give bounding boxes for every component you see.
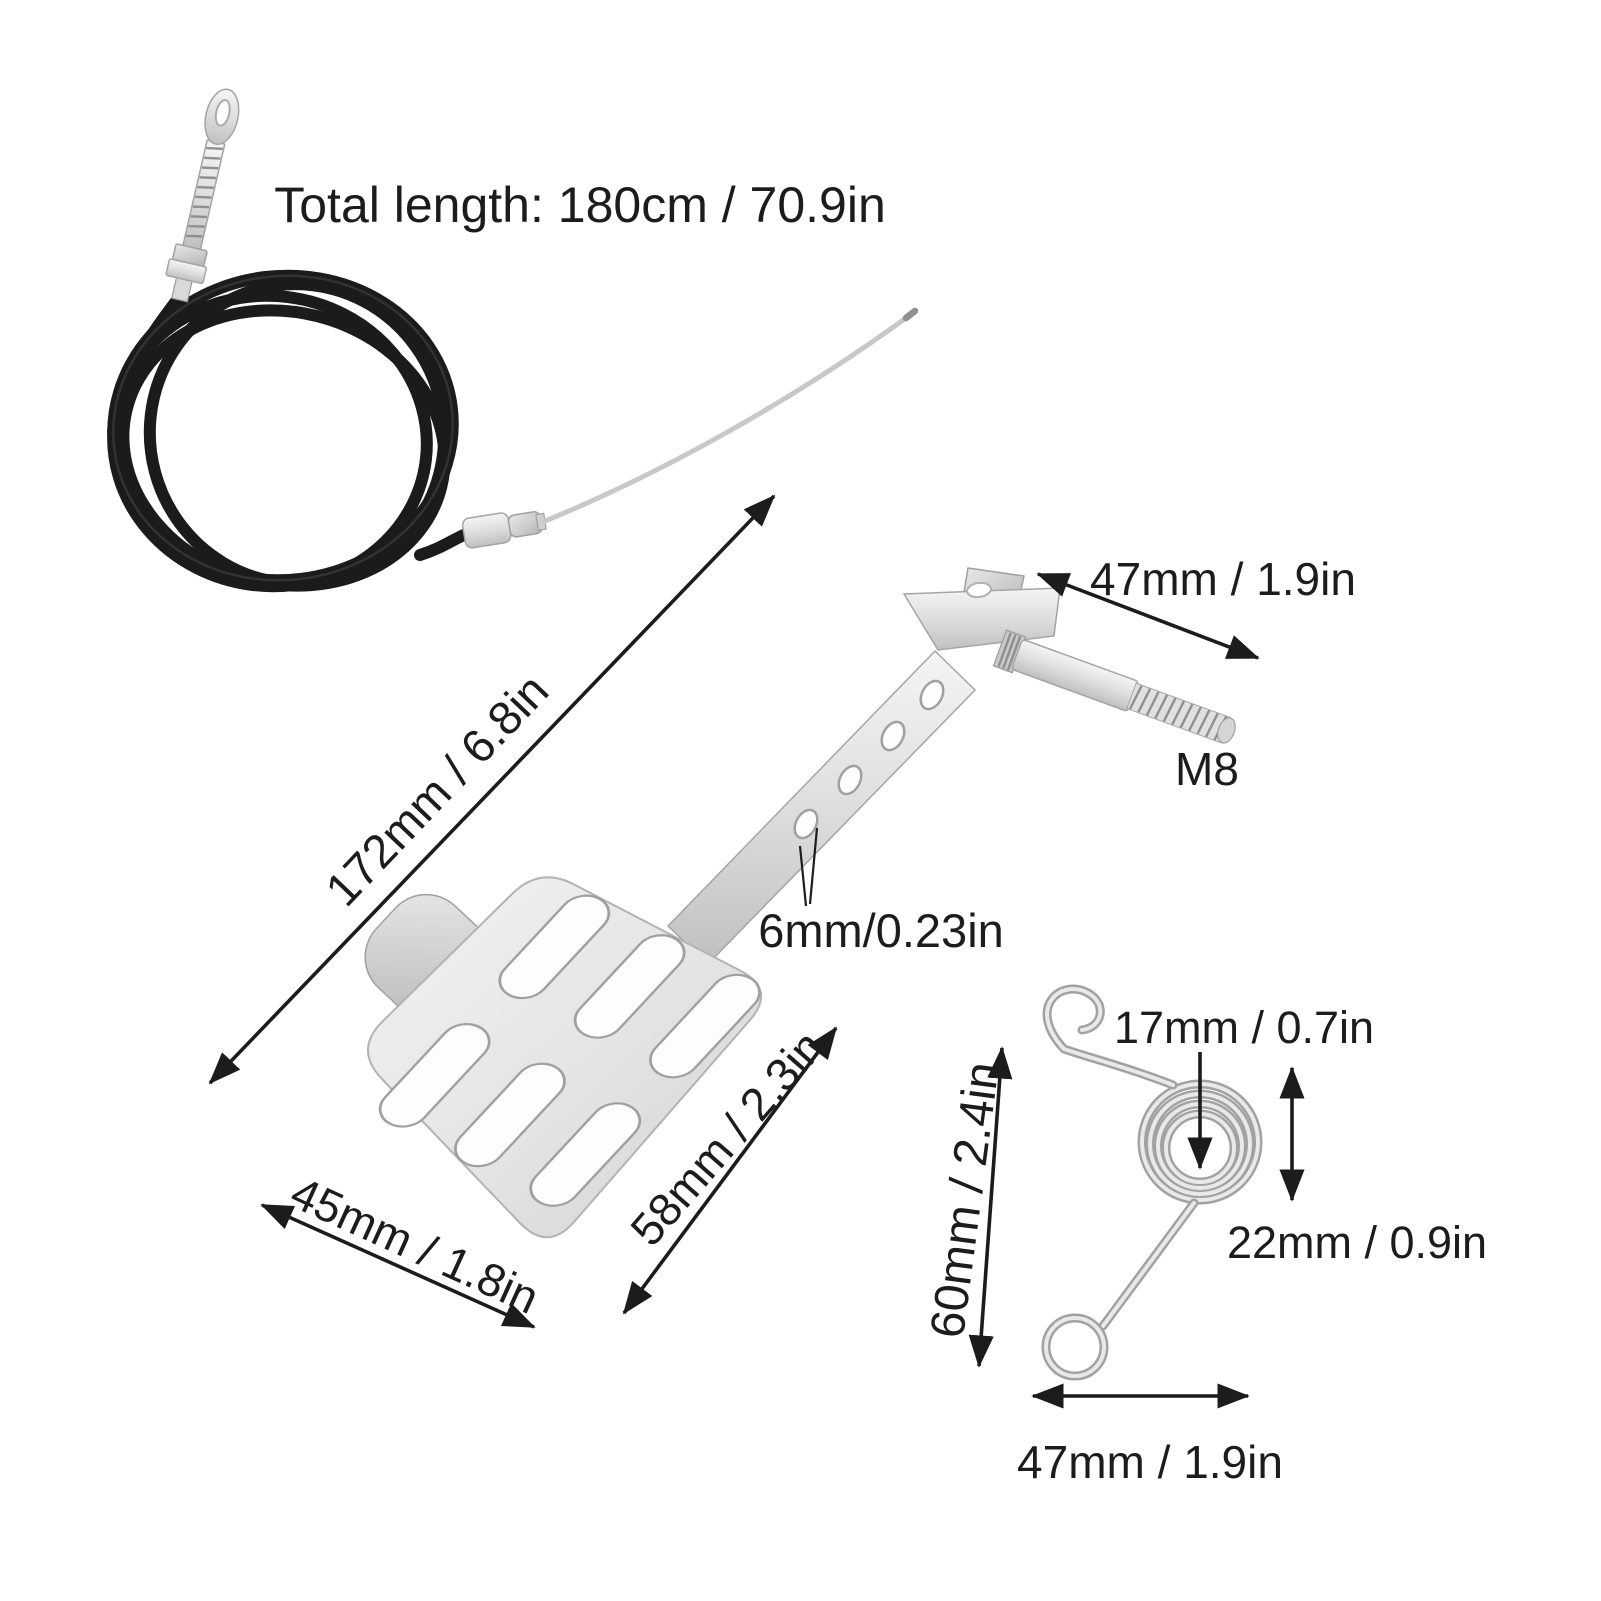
inner-wire-curve [545, 318, 906, 521]
thread-size-label: M8 [1175, 743, 1239, 795]
spring-width-label: 47mm / 1.9in [1017, 1436, 1283, 1488]
mounting-bolt [994, 630, 1241, 751]
spring-loop-highlight [1046, 1318, 1104, 1376]
dim-spring-width: 47mm / 1.9in [1017, 1396, 1283, 1488]
mount-bracket [904, 568, 1060, 650]
cable-coil [94, 251, 478, 619]
rod-shaft [182, 140, 224, 251]
spring-tail-highlight [1103, 1203, 1194, 1326]
bolt-length-label: 47mm / 1.9in [1090, 553, 1356, 605]
inner-wire-tip [906, 311, 915, 318]
product-dimension-diagram: Total length: 180cm / 70.9in 47mm / 1.9i… [0, 0, 1601, 1601]
spring-inner-label: 17mm / 0.7in [1114, 1002, 1374, 1053]
dim-thread-size: M8 [1175, 743, 1239, 795]
throttle-cable-photo [94, 85, 915, 619]
spring-coil-height-label: 22mm / 0.9in [1227, 1217, 1487, 1268]
dim-spring-height: 60mm / 2.4in [921, 1048, 1010, 1366]
total-length-label: Total length: 180cm / 70.9in [274, 177, 886, 233]
cable-inner-wire [545, 311, 915, 521]
diagram-canvas: Total length: 180cm / 70.9in 47mm / 1.9i… [0, 0, 1601, 1601]
spring-tail-loop [1046, 1203, 1194, 1376]
cable-exit [420, 534, 466, 555]
lever-length-label: 172mm / 6.8in [315, 663, 558, 916]
dim-spring-coil-height: 22mm / 0.9in [1227, 1068, 1487, 1268]
hole-diameter-label: 6mm/0.23in [758, 904, 1004, 957]
dim-total-length: Total length: 180cm / 70.9in [274, 177, 886, 233]
cable-ferrule [462, 506, 548, 548]
ferrule-body [462, 512, 512, 549]
pedal-lever-photo [348, 568, 1241, 1237]
spring-height-label: 60mm / 2.4in [921, 1059, 1010, 1341]
bolt-shaft [1011, 639, 1138, 711]
cable-threaded-rod [161, 85, 247, 304]
dim-bolt-length: 47mm / 1.9in [1038, 553, 1356, 658]
